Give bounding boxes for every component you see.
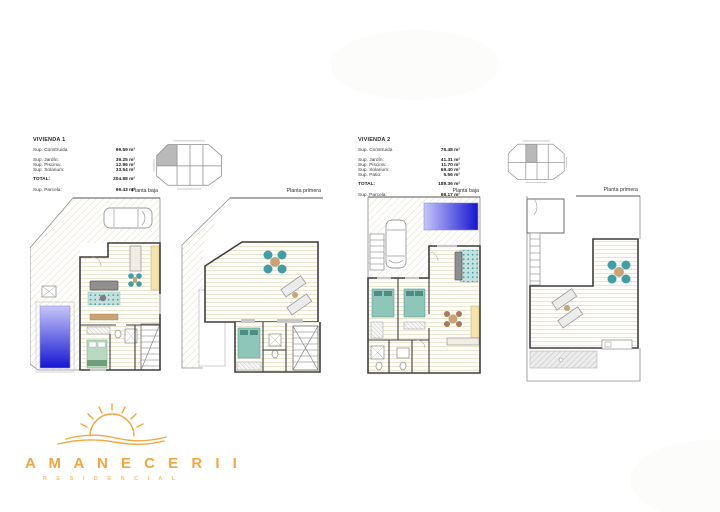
- spec-label: Sup. Patio:: [358, 173, 381, 178]
- paper-stain: [330, 30, 500, 100]
- highlighted-unit-cell: [157, 145, 177, 166]
- pool: [40, 306, 70, 368]
- kitchen-counter: [151, 246, 159, 290]
- spec-total-row: TOTAL: 189.36 m²: [358, 182, 460, 187]
- kitchen-counter: [471, 306, 479, 338]
- spec-total-row: TOTAL: 204.88 m²: [33, 177, 135, 182]
- coffee-table: [100, 295, 106, 301]
- unit1-spec-block: VIVIENDA 1 Sup. Construida 99.59 m² Sup.…: [33, 138, 135, 193]
- pergola: [530, 233, 540, 285]
- car-icon: [386, 220, 406, 268]
- plan-vivienda2-planta-primera: [526, 193, 644, 385]
- bed: [372, 289, 394, 317]
- plan-vivienda2-planta-baja: [367, 194, 483, 382]
- entry-stairs: [370, 234, 384, 270]
- wardrobe: [371, 322, 383, 338]
- spec-row: Sup. Construida 76.48 m²: [358, 148, 460, 153]
- spec-label: Sup. Solarium:: [33, 168, 64, 173]
- sofa: [90, 281, 118, 290]
- kitchen-counter-2: [447, 338, 479, 345]
- spec-value: 5.56 m²: [443, 173, 460, 178]
- pool: [424, 203, 478, 230]
- drain: [559, 358, 563, 362]
- spec-label: TOTAL:: [33, 177, 50, 182]
- logo: A M A N E C E R I I R E S I D E N C I A …: [25, 396, 197, 482]
- solarium-deck: [530, 239, 638, 348]
- outdoor-shower: [42, 286, 56, 297]
- unit1-key-plan: [153, 137, 227, 191]
- spec-label: Sup. Construida: [358, 148, 392, 153]
- spec-row: Sup. Patio: 5.56 m²: [358, 173, 460, 178]
- spec-label: Sup. Construida: [33, 148, 67, 153]
- spec-value: 99.59 m²: [116, 148, 135, 153]
- sofa: [455, 252, 462, 280]
- unit1-title: VIVIENDA 1: [33, 138, 135, 143]
- bed: [87, 340, 107, 368]
- sideboard: [90, 314, 118, 320]
- highlighted-unit-cell: [526, 144, 537, 162]
- stair-head-room: [527, 199, 564, 233]
- window: [277, 319, 303, 323]
- wardrobe: [87, 327, 110, 334]
- window: [241, 319, 255, 323]
- logo-subtitle: R E S I D E N C I A L: [25, 476, 197, 482]
- wardrobe: [237, 362, 261, 370]
- spec-row: Sup. Solarium: 33.54 m²: [33, 168, 135, 173]
- spec-value: 33.54 m²: [116, 168, 135, 173]
- spec-value: 189.36 m²: [438, 182, 460, 187]
- spec-value: 204.88 m²: [113, 177, 135, 182]
- bench: [602, 340, 632, 349]
- paper-stain: [630, 440, 720, 512]
- rug: [460, 250, 478, 282]
- plan-vivienda1-planta-baja: [30, 194, 166, 388]
- unit2-key-plan: [505, 135, 569, 187]
- plan-vivienda1-planta-primera: [181, 194, 327, 388]
- kitchen-island: [130, 246, 141, 271]
- spec-row: Sup. Construida 99.59 m²: [33, 148, 135, 153]
- concrete-strip: [530, 351, 597, 368]
- logo-name: A M A N E C E R I I: [25, 455, 197, 472]
- wardrobe: [404, 322, 425, 329]
- floorplan-sheet: VIVIENDA 1 Sup. Construida 99.59 m² Sup.…: [0, 0, 720, 512]
- spec-label: TOTAL:: [358, 182, 375, 187]
- stairs: [141, 324, 160, 370]
- car-icon: [104, 208, 152, 228]
- bed: [238, 328, 260, 358]
- sunrise-icon: [36, 396, 186, 448]
- stairs: [293, 326, 318, 370]
- unit2-title: VIVIENDA 2: [358, 138, 460, 143]
- spec-value: 76.48 m²: [441, 148, 460, 153]
- bed: [404, 289, 425, 317]
